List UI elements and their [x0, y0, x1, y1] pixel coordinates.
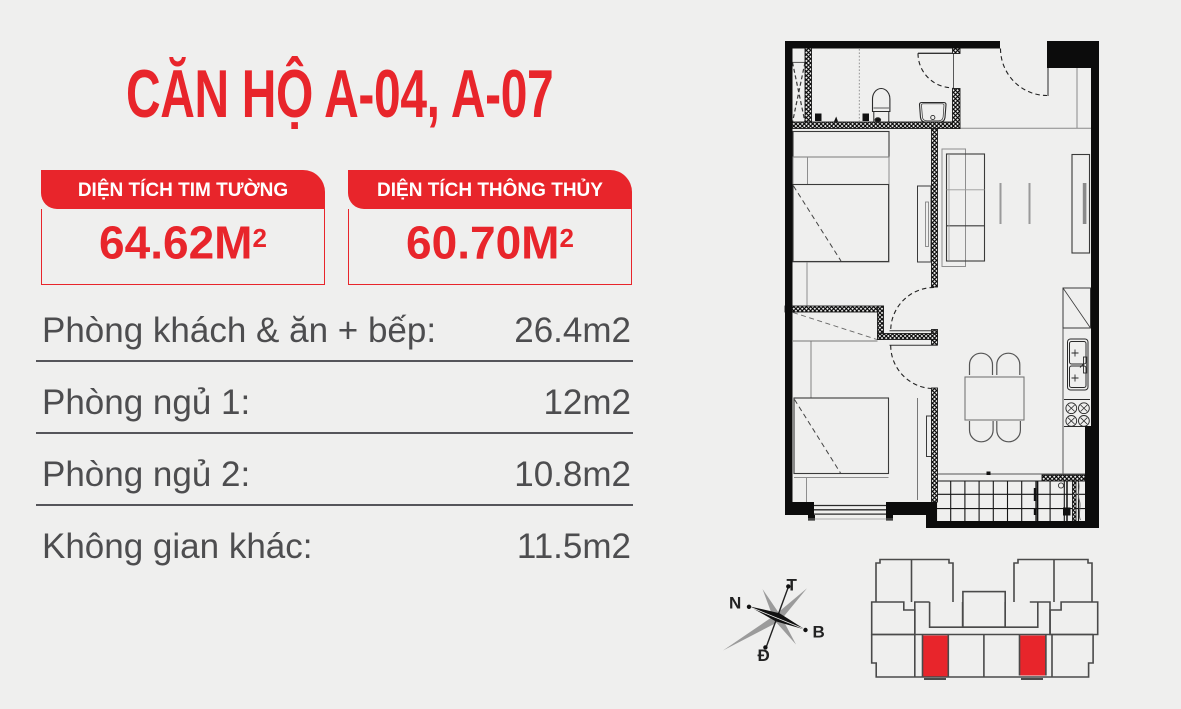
svg-text:T: T: [787, 576, 798, 595]
svg-text:B: B: [813, 623, 825, 642]
svg-text:N: N: [729, 594, 741, 613]
svg-text:Đ: Đ: [758, 646, 770, 665]
